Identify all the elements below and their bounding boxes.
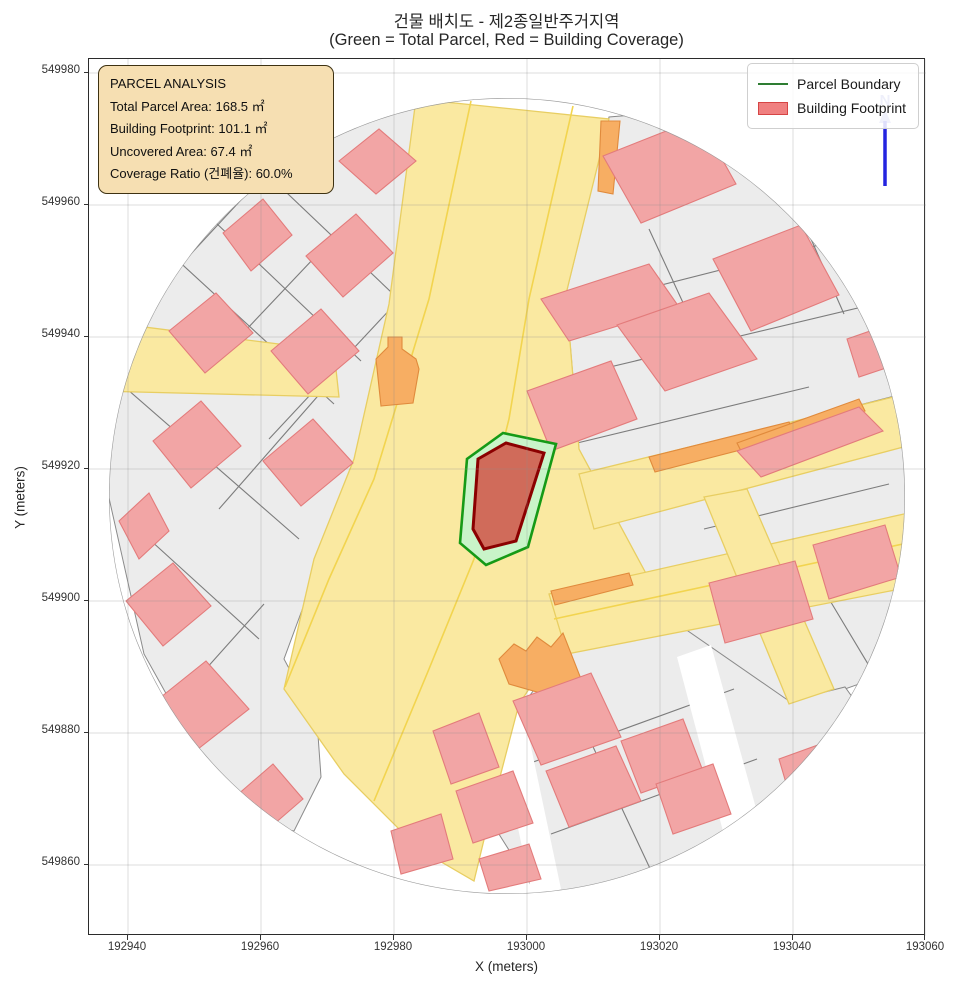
figure-title: 건물 배치도 - 제2종일반주거지역 xyxy=(88,8,925,32)
y-tick-label: 549900 xyxy=(42,592,80,604)
legend-patch-swatch xyxy=(758,102,788,115)
x-tick-label: 192980 xyxy=(374,941,412,953)
analysis-line-total-area: Total Parcel Area: 168.5 ㎡ xyxy=(110,96,322,119)
parcel-analysis-box: PARCEL ANALYSIS Total Parcel Area: 168.5… xyxy=(98,65,334,194)
figure-subtitle: (Green = Total Parcel, Red = Building Co… xyxy=(88,31,925,50)
x-tick-label: 192940 xyxy=(108,941,146,953)
x-tick-mark xyxy=(260,935,261,940)
figure: 건물 배치도 - 제2종일반주거지역 (Green = Total Parcel… xyxy=(0,0,955,990)
x-tick-label: 193020 xyxy=(640,941,678,953)
analysis-line-coverage: Coverage Ratio (건폐율): 60.0% xyxy=(110,163,322,186)
y-tick-mark xyxy=(84,336,89,337)
legend-item-building-footprint: Building Footprint xyxy=(758,96,906,120)
x-tick-mark xyxy=(924,935,925,940)
x-tick-label: 192960 xyxy=(241,941,279,953)
y-axis-label: Y (meters) xyxy=(13,448,28,548)
plot-area: N PARCEL ANALYSIS Total Parcel Area: 168… xyxy=(88,58,925,935)
y-tick-mark xyxy=(84,468,89,469)
y-tick-mark xyxy=(84,72,89,73)
y-tick-label: 549880 xyxy=(42,724,80,736)
x-tick-mark xyxy=(792,935,793,940)
y-tick-mark xyxy=(84,204,89,205)
legend-label: Parcel Boundary xyxy=(797,76,901,92)
legend: Parcel Boundary Building Footprint xyxy=(747,63,919,129)
y-tick-mark xyxy=(84,864,89,865)
legend-label: Building Footprint xyxy=(797,100,906,116)
x-tick-label: 193040 xyxy=(773,941,811,953)
legend-line-swatch xyxy=(758,83,788,85)
y-tick-mark xyxy=(84,600,89,601)
x-tick-mark xyxy=(393,935,394,940)
y-tick-mark xyxy=(84,732,89,733)
analysis-line-footprint: Building Footprint: 101.1 ㎡ xyxy=(110,118,322,141)
legend-item-parcel-boundary: Parcel Boundary xyxy=(758,72,906,96)
y-tick-label: 549920 xyxy=(42,460,80,472)
x-axis-label: X (meters) xyxy=(88,959,925,974)
analysis-title: PARCEL ANALYSIS xyxy=(110,73,322,96)
analysis-line-uncovered: Uncovered Area: 67.4 ㎡ xyxy=(110,141,322,164)
x-tick-mark xyxy=(127,935,128,940)
x-tick-mark xyxy=(526,935,527,940)
y-tick-label: 549860 xyxy=(42,856,80,868)
x-tick-mark xyxy=(659,935,660,940)
y-tick-label: 549960 xyxy=(42,196,80,208)
y-tick-label: 549940 xyxy=(42,328,80,340)
x-tick-label: 193060 xyxy=(906,941,944,953)
x-tick-label: 193000 xyxy=(507,941,545,953)
y-tick-label: 549980 xyxy=(42,64,80,76)
